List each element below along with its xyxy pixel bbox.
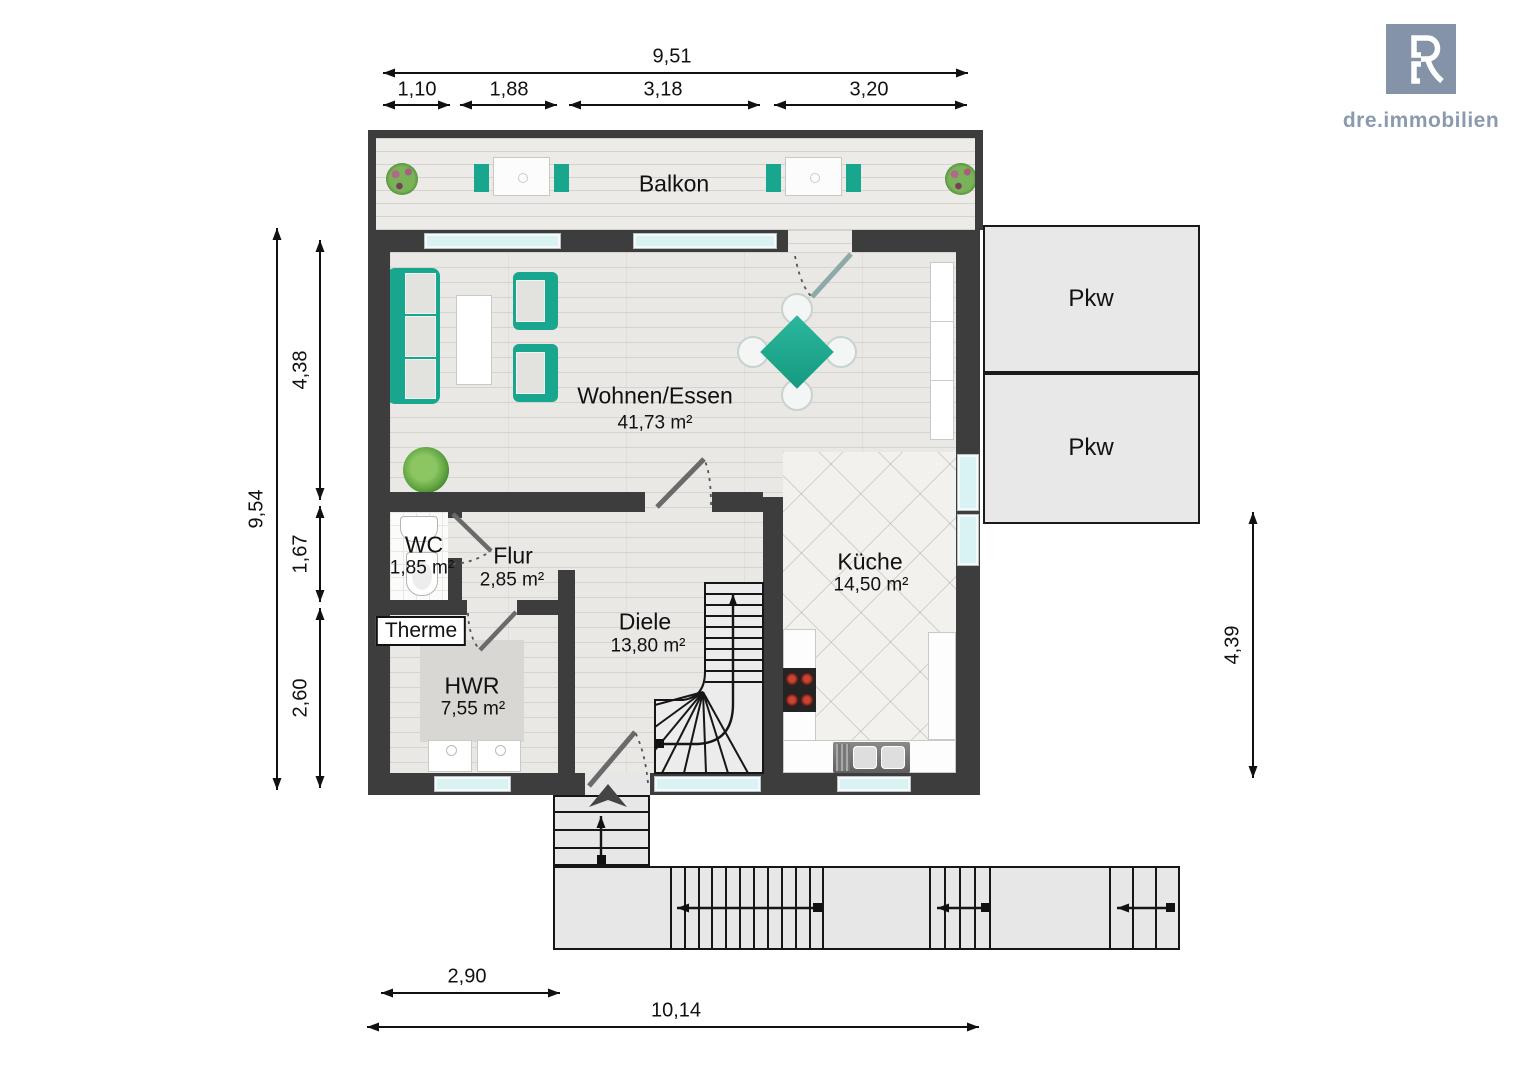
dimension-lines [277,73,1253,1027]
floorplan-canvas: Balkon Wohnen/Essen 41,73 m² WC 1,85 m² … [0,0,1528,1080]
walk-arrows [589,784,1175,912]
staircase [655,583,763,773]
plan-linework [0,0,1528,1080]
exterior-stairs [555,812,1156,948]
entrance-arrow-icon [589,784,627,807]
doors [453,254,851,786]
